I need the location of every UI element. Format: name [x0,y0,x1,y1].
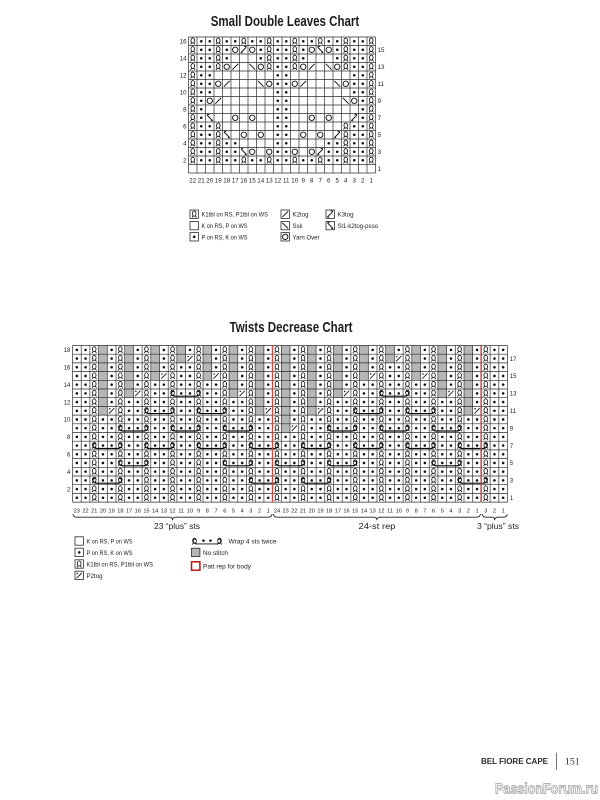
svg-text:15: 15 [378,47,385,54]
svg-text:13: 13 [161,509,167,515]
svg-text:Sl1-k2tog-psso: Sl1-k2tog-psso [338,223,379,230]
svg-text:4: 4 [183,140,187,147]
svg-text:17: 17 [232,178,239,185]
svg-text:20: 20 [309,509,315,515]
svg-text:18: 18 [64,348,71,354]
svg-text:3 “plus” sts: 3 “plus” sts [477,521,519,531]
svg-text:19: 19 [317,509,323,515]
svg-text:7: 7 [423,509,426,515]
svg-text:6: 6 [432,509,435,515]
svg-text:Twists Decrease Chart: Twists Decrease Chart [230,320,353,336]
svg-text:5: 5 [378,132,382,139]
svg-text:22: 22 [189,178,196,185]
svg-text:15: 15 [510,374,517,380]
svg-text:21: 21 [300,509,306,515]
svg-text:12: 12 [378,509,384,515]
svg-text:9: 9 [378,98,382,105]
svg-text:3: 3 [378,149,382,156]
svg-text:2: 2 [258,509,261,515]
svg-text:18: 18 [326,509,332,515]
svg-text:6: 6 [223,509,226,515]
svg-text:16: 16 [240,178,247,185]
svg-text:K3tog: K3tog [338,212,354,219]
svg-text:9: 9 [406,509,409,515]
svg-text:21: 21 [91,509,97,515]
svg-text:11: 11 [387,509,393,515]
svg-text:6: 6 [183,123,187,130]
svg-text:14: 14 [257,178,264,185]
svg-text:10: 10 [187,509,193,515]
svg-text:16: 16 [343,509,349,515]
svg-text:16: 16 [180,38,187,45]
svg-text:15: 15 [143,509,149,515]
svg-text:18: 18 [117,509,123,515]
svg-text:8: 8 [206,509,209,515]
svg-text:7: 7 [214,509,217,515]
svg-text:13: 13 [370,509,376,515]
svg-text:K2tog: K2tog [293,212,309,219]
svg-text:10: 10 [64,418,71,424]
svg-text:19: 19 [215,178,222,185]
svg-text:15: 15 [352,509,358,515]
svg-text:1: 1 [267,509,270,515]
svg-text:11: 11 [510,409,517,415]
svg-text:3: 3 [353,178,357,185]
svg-text:18: 18 [223,178,230,185]
svg-text:P on RS, K on WS: P on RS, K on WS [87,550,133,557]
svg-text:12: 12 [169,509,175,515]
svg-text:15: 15 [249,178,256,185]
svg-text:Wrap 4 sts twice: Wrap 4 sts twice [229,539,277,546]
svg-text:21: 21 [198,178,205,185]
svg-text:5: 5 [232,509,235,515]
svg-text:6: 6 [327,178,331,185]
svg-text:24: 24 [274,509,280,515]
svg-text:Yarn Over: Yarn Over [293,234,321,241]
svg-text:20: 20 [206,178,213,185]
svg-text:3: 3 [249,509,252,515]
svg-text:1: 1 [378,166,382,173]
svg-text:12: 12 [180,72,187,79]
svg-text:22: 22 [291,509,297,515]
svg-text:2: 2 [361,178,365,185]
svg-text:13: 13 [510,392,517,398]
svg-text:13: 13 [378,64,385,71]
svg-text:5: 5 [441,509,444,515]
svg-text:4: 4 [241,509,244,515]
svg-text:14: 14 [152,509,158,515]
svg-text:14: 14 [180,55,187,62]
svg-text:9: 9 [302,178,306,185]
svg-text:1: 1 [370,178,374,185]
svg-text:9: 9 [197,509,200,515]
svg-text:8: 8 [183,106,187,113]
svg-text:16: 16 [64,365,71,371]
svg-text:2: 2 [493,509,496,515]
svg-text:2: 2 [467,509,470,515]
svg-text:12: 12 [274,178,281,185]
svg-text:16: 16 [135,509,141,515]
svg-text:2: 2 [183,157,187,164]
svg-text:14: 14 [64,383,71,389]
svg-text:K on RS, P on WS: K on RS, P on WS [202,223,248,230]
svg-text:PassionForum.ru: PassionForum.ru [495,782,598,798]
svg-text:P2tog: P2tog [87,573,103,580]
svg-text:17: 17 [335,509,341,515]
svg-text:K1tbl on RS, P1tbl on WS: K1tbl on RS, P1tbl on WS [202,212,269,219]
svg-text:3: 3 [484,509,487,515]
svg-text:BEL FIORE CAPE: BEL FIORE CAPE [481,757,549,766]
svg-text:K on RS, P on WS: K on RS, P on WS [87,539,133,546]
svg-text:5: 5 [336,178,340,185]
svg-text:23: 23 [74,509,80,515]
svg-text:Ssk: Ssk [293,223,304,230]
svg-text:No stitch: No stitch [203,550,228,557]
svg-text:10: 10 [291,178,298,185]
svg-text:8: 8 [310,178,314,185]
svg-text:4: 4 [449,509,452,515]
svg-text:17: 17 [126,509,132,515]
svg-text:Small Double Leaves Chart: Small Double Leaves Chart [211,13,360,30]
svg-text:151: 151 [565,757,580,768]
svg-text:Patt rep for body: Patt rep for body [203,564,252,571]
svg-text:12: 12 [64,400,71,406]
svg-text:13: 13 [266,178,273,185]
svg-text:3: 3 [458,509,461,515]
svg-text:1: 1 [475,509,478,515]
svg-text:17: 17 [510,357,517,363]
svg-text:23 “plus” sts: 23 “plus” sts [154,521,200,531]
svg-text:P on RS, K on WS: P on RS, K on WS [202,234,248,241]
svg-text:14: 14 [361,509,367,515]
svg-text:4: 4 [344,178,348,185]
svg-text:7: 7 [378,115,382,122]
svg-text:11: 11 [283,178,290,185]
svg-text:K1tbl on RS, P1tbl on WS: K1tbl on RS, P1tbl on WS [87,562,154,569]
svg-text:22: 22 [82,509,88,515]
svg-text:23: 23 [283,509,289,515]
svg-text:7: 7 [319,178,323,185]
svg-text:24-st rep: 24-st rep [359,521,396,531]
svg-text:1: 1 [502,509,505,515]
svg-text:11: 11 [178,509,184,515]
svg-text:20: 20 [100,509,106,515]
svg-text:8: 8 [415,509,418,515]
svg-text:10: 10 [180,89,187,96]
svg-text:11: 11 [378,81,385,88]
svg-text:19: 19 [109,509,115,515]
svg-text:10: 10 [396,509,402,515]
